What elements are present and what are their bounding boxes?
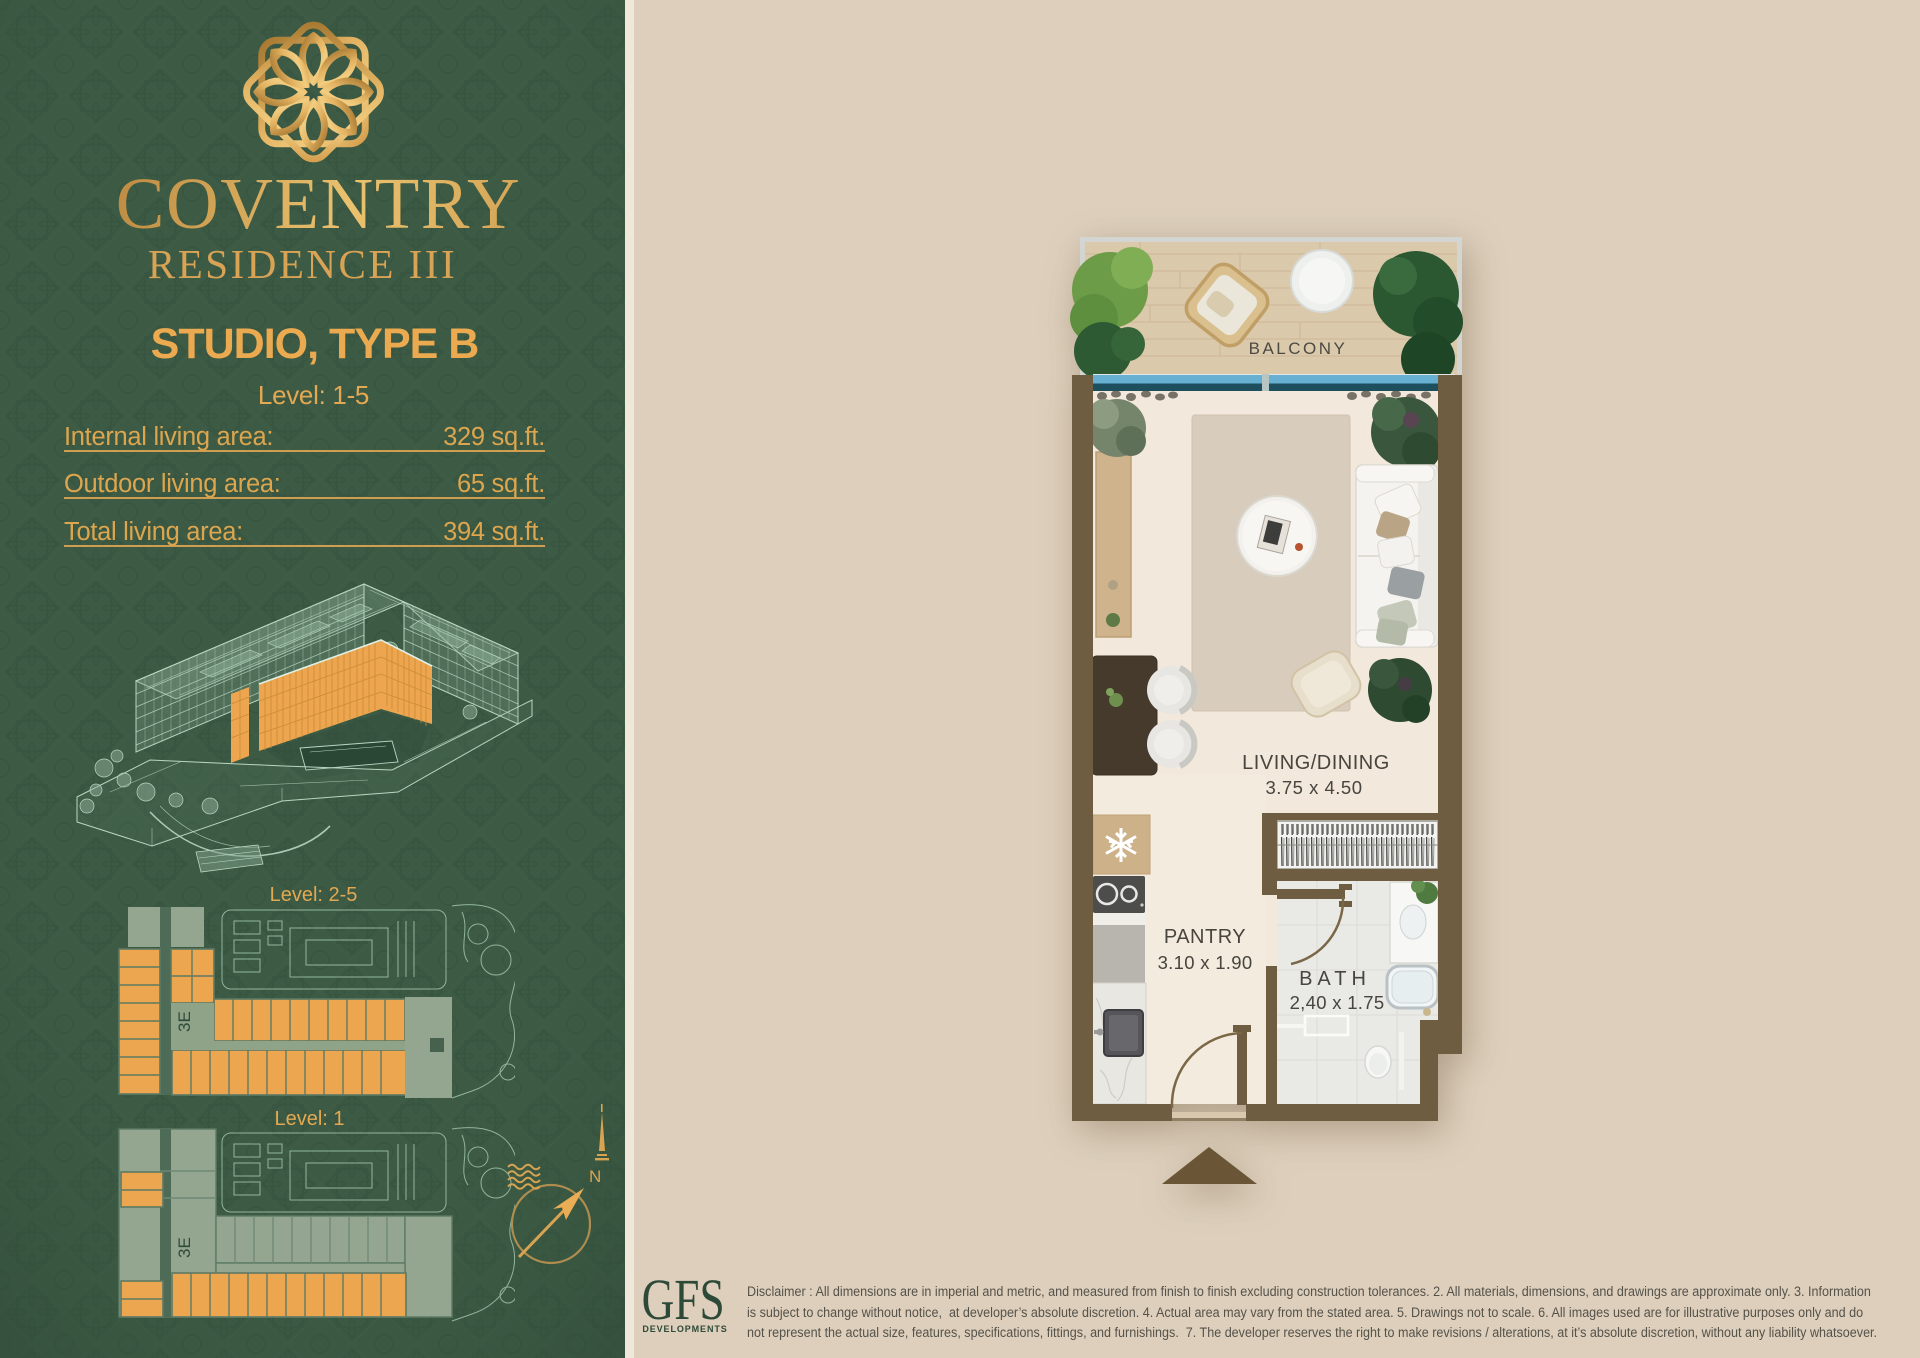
- svg-text:3.10 x 1.90: 3.10 x 1.90: [1158, 952, 1253, 973]
- svg-text:3E: 3E: [175, 1011, 194, 1032]
- svg-text:BALCONY: BALCONY: [1249, 339, 1348, 358]
- svg-text:2,40 x 1.75: 2,40 x 1.75: [1290, 992, 1385, 1013]
- svg-text:BATH: BATH: [1299, 968, 1371, 990]
- svg-text:N: N: [589, 1167, 601, 1186]
- svg-text:3E: 3E: [175, 1237, 194, 1258]
- svg-text:3.75 x 4.50: 3.75 x 4.50: [1265, 777, 1362, 798]
- svg-text:LIVING/DINING: LIVING/DINING: [1242, 752, 1390, 774]
- svg-text:PANTRY: PANTRY: [1164, 926, 1246, 948]
